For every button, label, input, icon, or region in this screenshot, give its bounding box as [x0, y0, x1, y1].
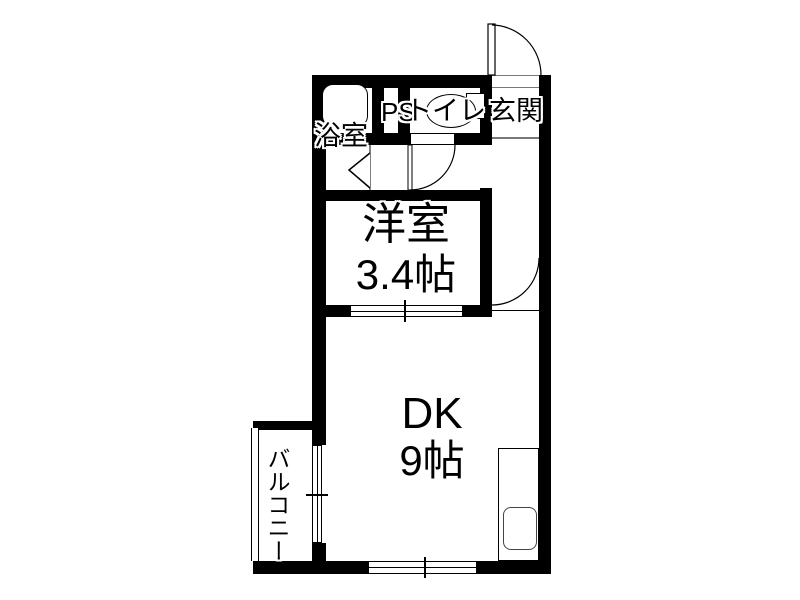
- hallway-doorway: [492, 305, 539, 317]
- floor-plan-canvas: 浴室 PS トイレ 玄関 洋室 3.4帖 DK 9帖 バルコニー: [0, 0, 800, 600]
- balcony-window-tick: [306, 494, 328, 496]
- entrance-label: 玄関: [489, 98, 543, 125]
- dk-size: 9帖: [326, 440, 538, 482]
- kitchen-sink-icon: [503, 507, 537, 550]
- entrance-door-swing-icon: [492, 25, 541, 75]
- right-wall: [539, 75, 551, 574]
- balcony-top-wall: [253, 421, 312, 430]
- toilet-door-leaf: [408, 145, 412, 190]
- toilet-doorway: [410, 133, 455, 145]
- western-room-label: 洋室: [326, 203, 486, 247]
- dk-south-window-tick: [424, 557, 426, 578]
- balcony-rail: [251, 428, 259, 561]
- entrance-step-line: [492, 137, 539, 139]
- room-divider-wall-right: [463, 305, 492, 317]
- sliding-door-western-room: [350, 305, 463, 317]
- bathroom-folding-door-icon: [349, 153, 370, 188]
- dk-south-window: [368, 561, 477, 574]
- toilet-door-swing-icon: [410, 145, 455, 190]
- room-divider-wall-left: [312, 305, 350, 317]
- bathroom-label: 浴室: [314, 123, 368, 150]
- entrance-doorway: [492, 75, 539, 88]
- entrance-door-leaf: [488, 24, 495, 75]
- sliding-door-tick: [404, 300, 406, 322]
- hallway-door-swing-icon: [492, 258, 539, 305]
- balcony-label: バルコニー: [265, 447, 288, 562]
- dk-label: DK: [326, 392, 538, 436]
- western-room-size: 3.4帖: [326, 254, 486, 296]
- toilet-label: トイレ: [405, 98, 485, 125]
